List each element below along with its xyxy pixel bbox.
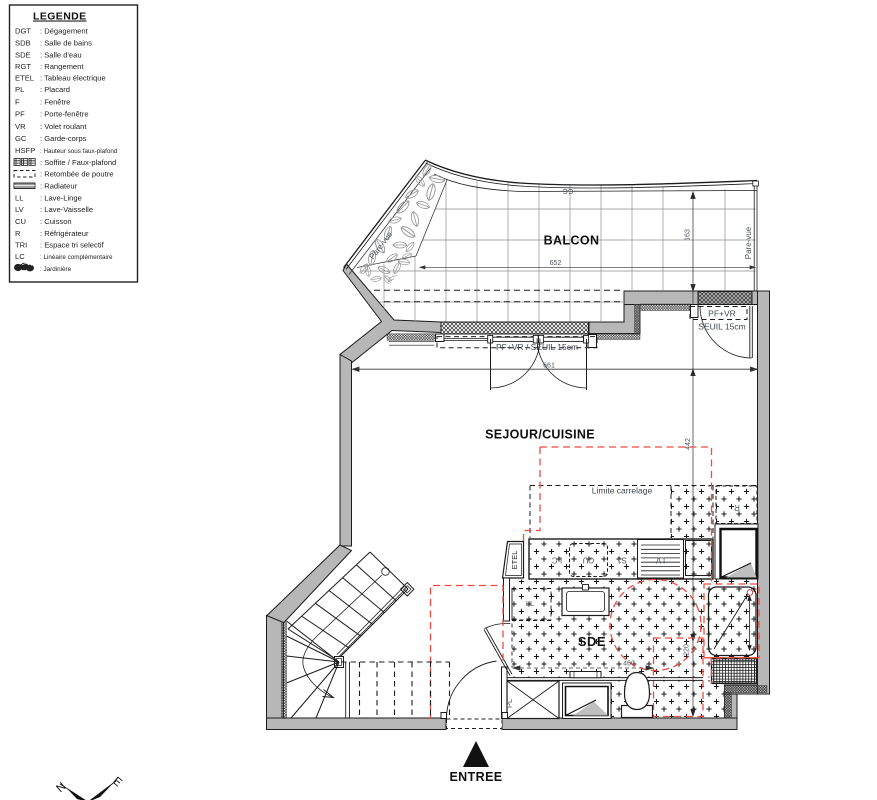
svg-text:: Garde-corps: : Garde-corps [40, 134, 87, 143]
svg-text:: Rangement: : Rangement [40, 62, 84, 71]
svg-text:: Espace tri selectif: : Espace tri selectif [40, 241, 105, 250]
svg-text:SEUIL 15cm: SEUIL 15cm [698, 322, 745, 332]
svg-text:Limite carrelage: Limite carrelage [592, 486, 653, 496]
svg-text:CU: CU [583, 556, 595, 565]
svg-text:PL: PL [15, 85, 24, 94]
svg-text:TRI: TRI [15, 241, 27, 250]
svg-text:BALCON: BALCON [544, 234, 600, 248]
svg-text:LL: LL [526, 599, 534, 608]
svg-text:652: 652 [550, 260, 562, 267]
svg-text:661: 661 [543, 362, 555, 369]
svg-text:460: 460 [623, 661, 635, 668]
svg-text:: Linéaire complémentaire: : Linéaire complémentaire [40, 254, 113, 261]
svg-text:RGT: RGT [15, 62, 31, 71]
svg-text:: Volet roulant: : Volet roulant [40, 122, 87, 131]
svg-text:GC: GC [563, 187, 574, 194]
svg-text:LC: LC [15, 252, 25, 261]
svg-text:: Lave-Linge: : Lave-Linge [40, 194, 82, 203]
svg-text:SDB: SDB [15, 39, 31, 48]
svg-text:SEJOUR/CUISINE: SEJOUR/CUISINE [485, 428, 595, 442]
svg-text:: Dégagement: : Dégagement [40, 27, 89, 36]
svg-text:CU: CU [15, 217, 26, 226]
svg-text:ETEL: ETEL [15, 74, 34, 83]
svg-text:: Réfrigérateur: : Réfrigérateur [40, 229, 89, 238]
svg-text:: Salle d'eau: : Salle d'eau [40, 51, 82, 60]
svg-text:F: F [15, 98, 20, 107]
svg-text:220: 220 [684, 644, 691, 656]
svg-text:: Hauteur sous faux-plafond: : Hauteur sous faux-plafond [40, 148, 118, 155]
svg-text:: Fenêtre: : Fenêtre [40, 98, 70, 107]
svg-text:PF: PF [15, 110, 25, 119]
svg-text:: Soffite / Faux-plafond: : Soffite / Faux-plafond [40, 158, 116, 167]
svg-text:163: 163 [685, 229, 692, 241]
svg-text:SDE: SDE [15, 51, 31, 60]
svg-text:ENTREE: ENTREE [449, 770, 502, 784]
svg-text:: Lave-Vaisselle: : Lave-Vaisselle [40, 205, 93, 214]
svg-text:S1: S1 [617, 556, 627, 565]
svg-text:SDE: SDE [578, 634, 606, 649]
svg-text:: Salle de bains: : Salle de bains [40, 39, 92, 48]
svg-text:LV: LV [15, 205, 25, 214]
svg-text:: Tableau électrique: : Tableau électrique [40, 74, 106, 83]
svg-text:PL: PL [505, 699, 514, 708]
svg-text:PF+VR: PF+VR [708, 309, 736, 319]
svg-text:VR: VR [15, 122, 26, 131]
svg-text:: Radiateur: : Radiateur [40, 182, 78, 191]
svg-text:: Retombée de poutre: : Retombée de poutre [40, 170, 113, 179]
svg-text:LEGENDE: LEGENDE [33, 11, 87, 23]
svg-text:: Jardinière: : Jardinière [40, 266, 72, 273]
svg-text:DGT: DGT [15, 27, 31, 36]
svg-text:HSFP: HSFP [15, 146, 35, 155]
svg-text:LC: LC [552, 556, 562, 565]
svg-text:: Cuisson: : Cuisson [40, 217, 72, 226]
svg-text:Pare-vue: Pare-vue [744, 226, 753, 259]
svg-text:LL: LL [15, 194, 23, 203]
svg-text:GC: GC [15, 134, 27, 143]
svg-text:: Placard: : Placard [40, 85, 70, 94]
svg-text:R: R [15, 229, 21, 238]
svg-text:ETEL: ETEL [510, 551, 519, 570]
svg-text:LV: LV [655, 556, 665, 565]
svg-text:442: 442 [685, 438, 692, 450]
svg-text:: Porte-fenêtre: : Porte-fenêtre [40, 110, 89, 119]
svg-text:R: R [734, 503, 740, 512]
